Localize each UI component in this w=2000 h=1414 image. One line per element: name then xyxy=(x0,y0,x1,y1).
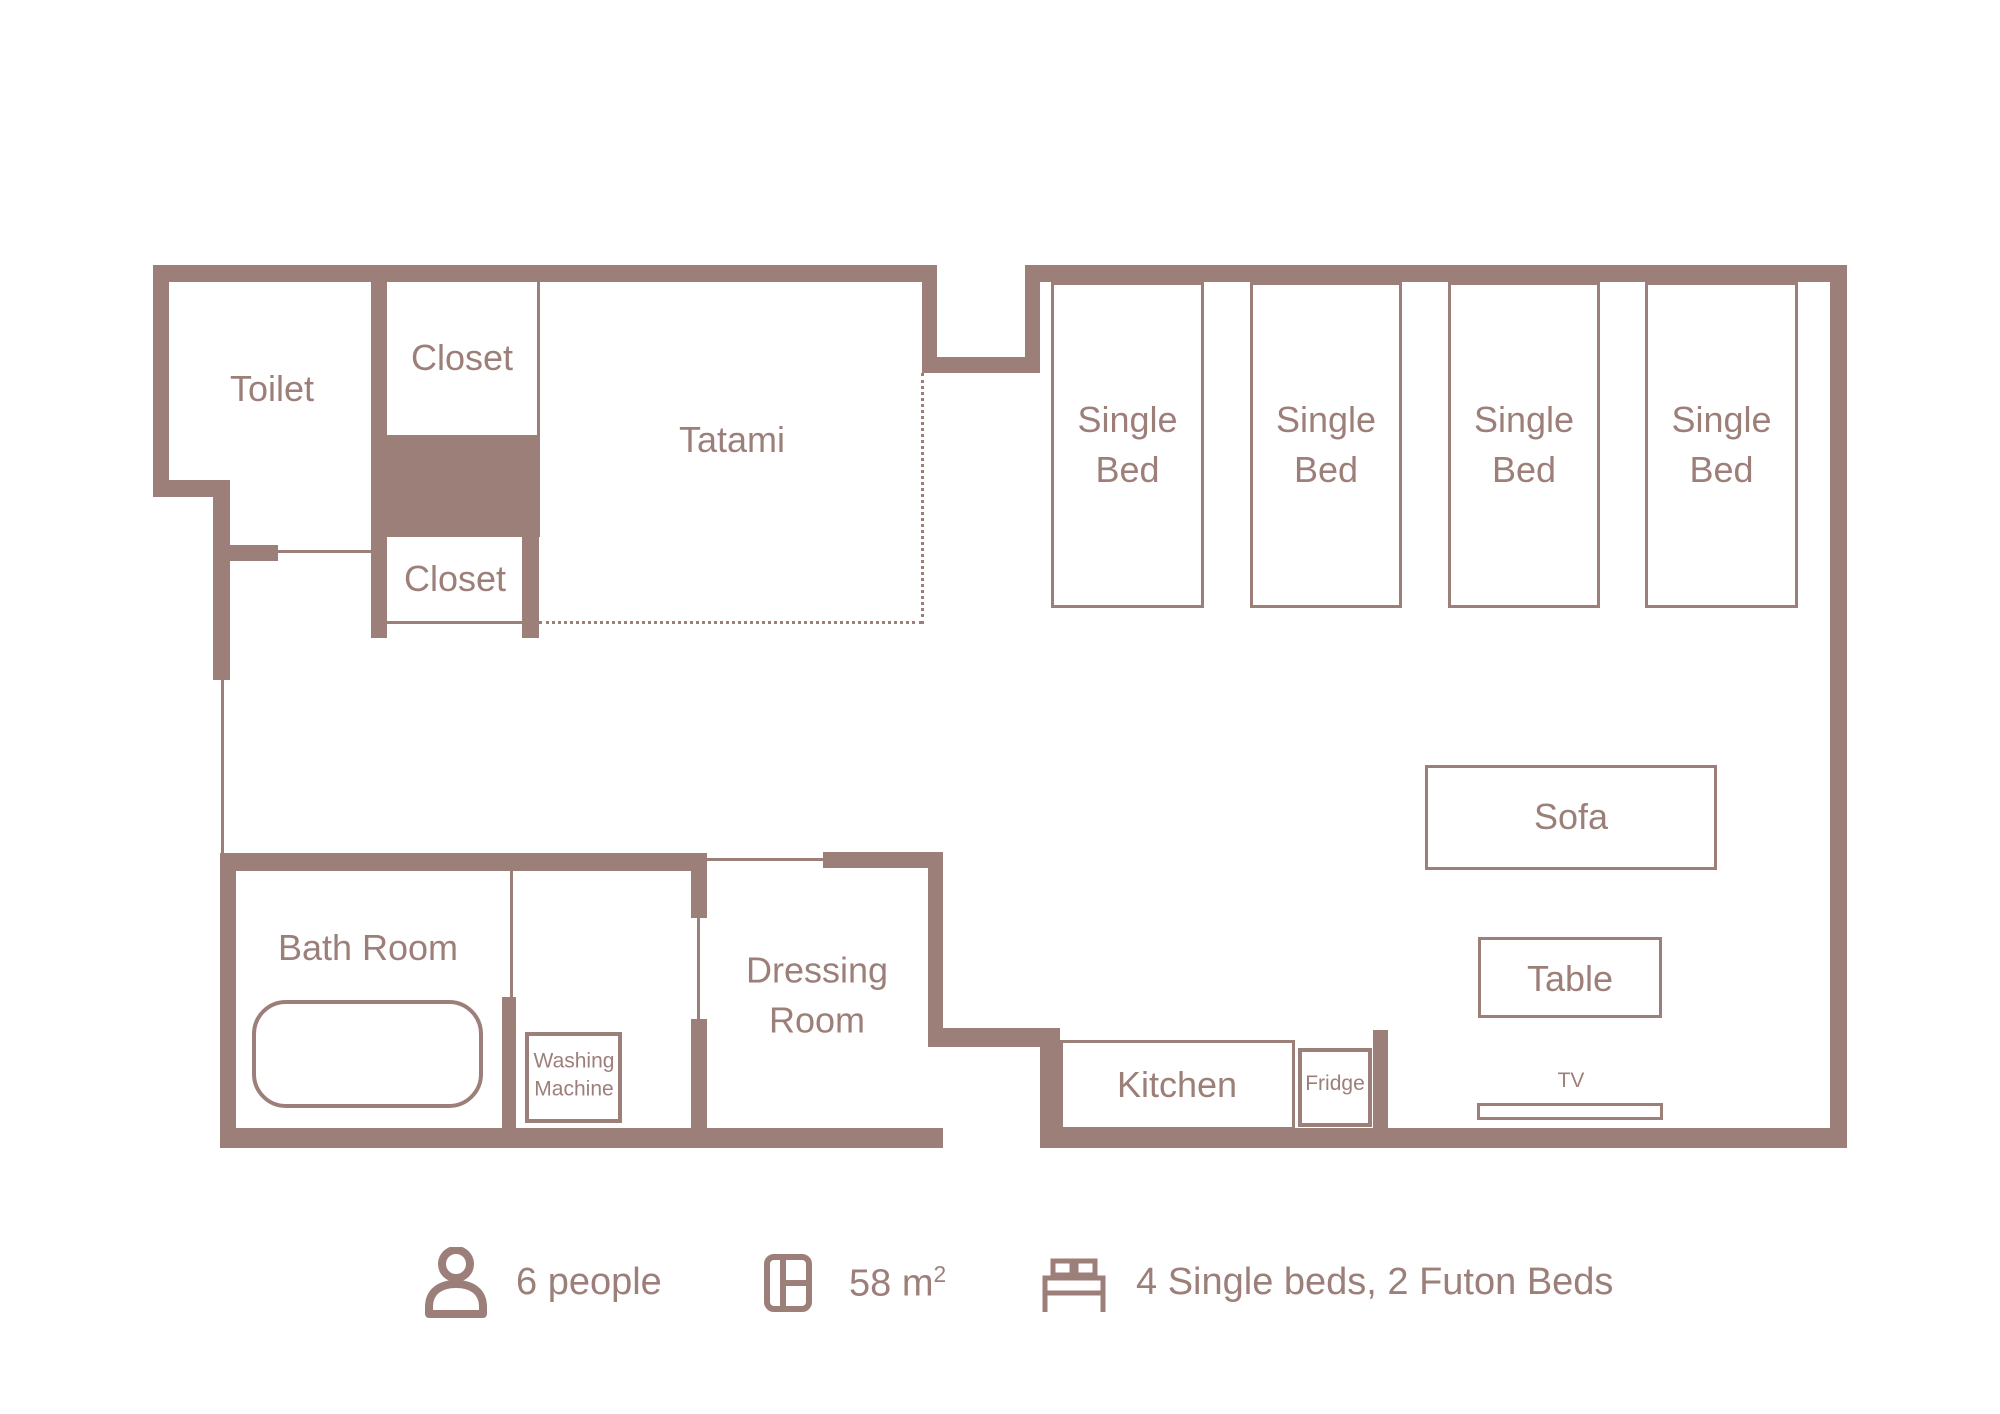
room-label-tatami: Tatami xyxy=(679,415,785,465)
single-bed-label: Bed xyxy=(1671,445,1771,495)
label-washing-machine: Washing Machine xyxy=(534,1048,615,1105)
wall-segment xyxy=(1025,282,1040,357)
single-bed-label: Bed xyxy=(1276,445,1376,495)
door-line xyxy=(697,918,700,1019)
room-label-kitchen: Kitchen xyxy=(1117,1060,1237,1110)
wall-segment xyxy=(153,282,169,497)
single-bed-outline: SingleBed xyxy=(1250,282,1402,608)
label-tv: TV xyxy=(1558,1067,1585,1095)
single-bed-label: Single xyxy=(1671,395,1771,445)
single-bed-outline: SingleBed xyxy=(1051,282,1204,608)
wall-segment xyxy=(928,868,943,1028)
wall-segment xyxy=(522,537,539,638)
legend-people: 6 people xyxy=(516,1261,662,1304)
dressing-room-line1: Dressing xyxy=(746,946,888,996)
washing-machine-line1: Washing xyxy=(534,1048,615,1076)
dressing-room-line2: Room xyxy=(746,996,888,1046)
wall-segment xyxy=(823,852,943,868)
wall-segment xyxy=(691,871,707,918)
person-icon xyxy=(424,1247,488,1319)
room-label-bath-room: Bath Room xyxy=(278,923,458,973)
wall-segment xyxy=(220,853,707,871)
wall-segment xyxy=(213,497,230,680)
tv-outline xyxy=(1477,1103,1663,1120)
single-bed-label: Single xyxy=(1276,395,1376,445)
legend-area-value: 58 m xyxy=(849,1263,933,1305)
wall-segment xyxy=(502,997,516,1128)
legend-beds: 4 Single beds, 2 Futon Beds xyxy=(1136,1261,1613,1304)
door-line xyxy=(278,550,371,553)
floorplan-icon xyxy=(763,1253,813,1313)
wall-segment xyxy=(220,1128,943,1148)
label-fridge: Fridge xyxy=(1305,1070,1365,1098)
room-label-closet-lower: Closet xyxy=(404,554,506,604)
wall-segment xyxy=(153,265,937,282)
single-bed-label: Single xyxy=(1077,395,1177,445)
wall-segment xyxy=(922,357,1040,373)
door-line xyxy=(221,680,224,853)
wall-thin-line xyxy=(537,282,540,435)
wall-segment xyxy=(1025,265,1847,282)
single-bed-label: Single xyxy=(1474,395,1574,445)
single-bed-label: Bed xyxy=(1474,445,1574,495)
room-label-toilet: Toilet xyxy=(230,364,314,414)
single-bed-label: Bed xyxy=(1077,445,1177,495)
wall-segment xyxy=(1040,1128,1847,1148)
washing-machine-line2: Machine xyxy=(534,1076,615,1104)
tatami-dotted-boundary-horizontal xyxy=(539,621,922,624)
wall-segment xyxy=(371,282,387,638)
single-bed-outline: SingleBed xyxy=(1645,282,1798,608)
wall-segment xyxy=(1830,282,1847,1148)
wall-segment xyxy=(153,480,230,497)
room-label-closet-upper: Closet xyxy=(411,333,513,383)
wall-segment xyxy=(1373,1030,1388,1128)
legend-area-superscript: 2 xyxy=(933,1261,946,1287)
label-table: Table xyxy=(1527,954,1613,1004)
tatami-dotted-boundary-vertical xyxy=(921,373,924,624)
legend-area: 58 m2 xyxy=(849,1261,946,1306)
room-label-dressing-room: Dressing Room xyxy=(746,946,888,1047)
wall-segment xyxy=(928,1028,1060,1047)
door-line xyxy=(707,858,823,861)
floor-plan: SingleBed SingleBed SingleBed SingleBed … xyxy=(0,0,2000,1414)
wall-segment xyxy=(691,1019,707,1128)
wall-thin-line xyxy=(387,621,522,624)
wall-segment xyxy=(228,545,278,561)
wall-thin-line xyxy=(510,871,513,997)
wall-segment xyxy=(387,435,540,537)
wall-segment xyxy=(220,871,236,1128)
bed-icon xyxy=(1040,1256,1108,1314)
bathtub-outline xyxy=(252,1000,483,1108)
label-sofa: Sofa xyxy=(1534,792,1608,842)
single-bed-outline: SingleBed xyxy=(1448,282,1600,608)
